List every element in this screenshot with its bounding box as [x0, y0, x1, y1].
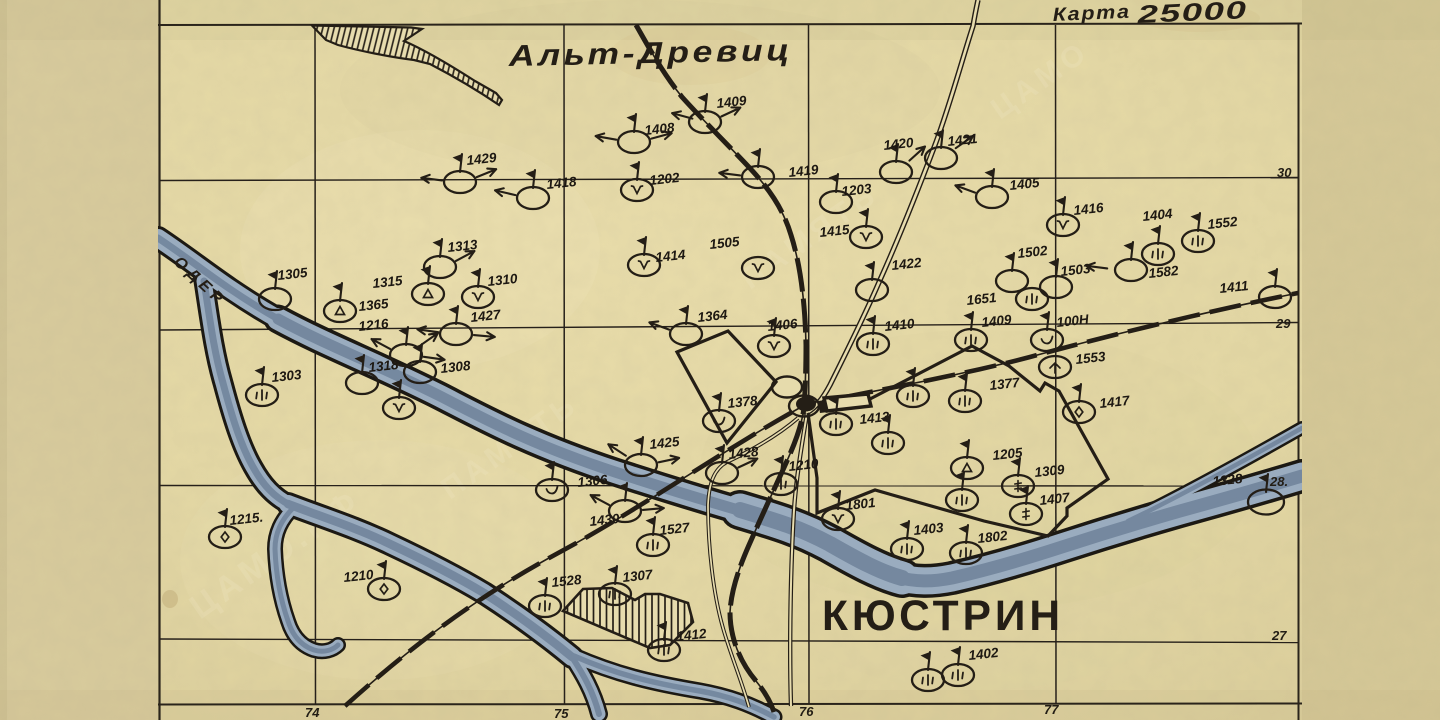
svg-text:1313: 1313 — [447, 237, 479, 255]
svg-text:1430: 1430 — [589, 511, 621, 529]
svg-text:28.: 28. — [1269, 474, 1288, 489]
svg-text:1406: 1406 — [767, 316, 799, 334]
svg-text:1425: 1425 — [649, 434, 681, 452]
svg-text:1414: 1414 — [655, 247, 687, 265]
svg-text:1318: 1318 — [368, 357, 400, 375]
svg-text:1408: 1408 — [644, 120, 676, 138]
svg-text:1202: 1202 — [649, 170, 681, 188]
svg-text:1203: 1203 — [841, 181, 873, 199]
svg-text:25000: 25000 — [1136, 0, 1249, 29]
svg-text:1553: 1553 — [1075, 349, 1107, 367]
svg-text:1364: 1364 — [697, 307, 729, 325]
svg-text:1402: 1402 — [968, 645, 1000, 663]
svg-text:Карта: Карта — [1052, 2, 1131, 26]
svg-text:1378: 1378 — [727, 393, 759, 411]
svg-text:1428: 1428 — [728, 444, 760, 462]
svg-text:1801: 1801 — [845, 495, 876, 513]
svg-text:1505: 1505 — [709, 234, 741, 252]
svg-text:75: 75 — [554, 706, 569, 720]
svg-text:1415: 1415 — [819, 222, 851, 240]
svg-text:1421: 1421 — [947, 131, 978, 149]
svg-text:1503: 1503 — [1060, 261, 1092, 279]
svg-text:1502: 1502 — [1017, 243, 1049, 261]
svg-text:КЮСТРИН: КЮСТРИН — [822, 592, 1064, 640]
svg-text:1412: 1412 — [676, 626, 708, 644]
svg-text:1305: 1305 — [277, 265, 309, 283]
svg-text:77: 77 — [1044, 702, 1059, 717]
svg-text:29: 29 — [1275, 316, 1291, 331]
svg-text:76: 76 — [799, 704, 814, 719]
svg-text:1528: 1528 — [551, 572, 583, 590]
svg-text:1411: 1411 — [1219, 278, 1249, 296]
svg-text:1582: 1582 — [1148, 263, 1180, 281]
svg-text:1416: 1416 — [1073, 200, 1105, 218]
svg-text:1365: 1365 — [358, 296, 390, 314]
svg-text:1404: 1404 — [1142, 206, 1174, 224]
svg-text:1409: 1409 — [716, 93, 748, 111]
svg-text:1403: 1403 — [913, 520, 945, 538]
svg-text:27: 27 — [1271, 628, 1287, 643]
svg-text:1422: 1422 — [891, 255, 923, 273]
svg-text:1418: 1418 — [546, 174, 578, 192]
svg-text:1303: 1303 — [271, 367, 303, 385]
svg-text:1308: 1308 — [440, 358, 472, 376]
svg-text:1309: 1309 — [1034, 462, 1066, 480]
svg-text:1429: 1429 — [466, 150, 498, 168]
svg-text:1420: 1420 — [883, 135, 915, 153]
svg-text:1306: 1306 — [577, 472, 609, 490]
svg-text:1310: 1310 — [487, 271, 519, 289]
svg-text:Альт-Древиц: Альт-Древиц — [507, 34, 793, 73]
svg-text:1552: 1552 — [1207, 214, 1239, 232]
svg-text:30: 30 — [1277, 165, 1292, 180]
svg-text:1315: 1315 — [372, 273, 404, 291]
svg-text:1216: 1216 — [358, 316, 390, 334]
svg-text:1405: 1405 — [1009, 175, 1041, 193]
svg-text:74: 74 — [305, 705, 320, 720]
svg-text:1328: 1328 — [1212, 471, 1244, 489]
svg-text:1410: 1410 — [884, 316, 916, 334]
svg-text:1409: 1409 — [981, 312, 1013, 330]
svg-text:1210: 1210 — [788, 456, 820, 474]
svg-text:1419: 1419 — [788, 162, 820, 180]
svg-text:1802: 1802 — [977, 528, 1009, 546]
svg-text:1651: 1651 — [966, 290, 997, 308]
svg-text:1210: 1210 — [343, 567, 375, 585]
